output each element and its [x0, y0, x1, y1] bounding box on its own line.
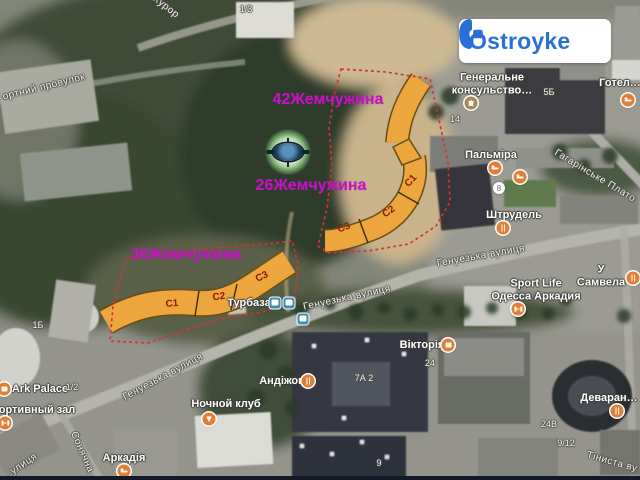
transit-icon[interactable] — [284, 298, 295, 309]
section-label: C3 — [254, 269, 270, 284]
poi-label[interactable]: У Самвела — [577, 264, 625, 289]
street-label: ортний провулок — [2, 71, 87, 102]
poi-label[interactable]: Турбаза — [227, 297, 270, 310]
building-number: 9/12 — [557, 438, 575, 448]
poi-label[interactable]: Ark Palace — [12, 383, 68, 396]
section-label: C3 — [336, 221, 352, 236]
building-number: 9 — [376, 458, 381, 468]
bar-icon[interactable] — [203, 413, 216, 426]
hotel-icon[interactable] — [514, 171, 527, 184]
building-number: 7А 2 — [355, 373, 374, 383]
building-number: 24 — [425, 358, 435, 368]
poi-label[interactable]: Ночной клуб — [191, 398, 260, 411]
transit-icon[interactable] — [270, 298, 281, 309]
transit-icon[interactable] — [298, 314, 309, 325]
poi-label[interactable]: Аркадія — [103, 452, 146, 465]
street-label: Генуезька вулиця — [121, 351, 205, 403]
building-number: 1Б — [33, 320, 44, 330]
complex-label: 36Жемчужина — [131, 246, 242, 264]
restaurant-icon[interactable] — [611, 405, 624, 418]
poi-label[interactable]: Генеральне консульство… — [452, 72, 532, 97]
street-label: Генуезька вулиця — [436, 243, 526, 269]
restaurant-icon[interactable] — [627, 272, 640, 285]
restaurant-icon[interactable] — [302, 375, 315, 388]
street-label: Гагарінське Плато — [552, 147, 637, 204]
building-number: 1/2 — [66, 382, 79, 392]
store-icon[interactable] — [442, 339, 455, 352]
venue-icon[interactable] — [0, 383, 11, 396]
poi-label[interactable]: Деваран… — [580, 392, 637, 405]
poi-label[interactable]: Штрудель — [486, 209, 542, 222]
building-number: 8 — [493, 182, 505, 194]
complex-label: 26Жемчужина — [256, 177, 367, 195]
street-label: Тіниста ву — [585, 449, 638, 474]
poi-label[interactable]: Sport Life Одесса Аркадия — [491, 278, 580, 303]
street-label: Сонячна — [68, 430, 96, 474]
section-label: C1 — [165, 298, 179, 310]
section-label: C2 — [381, 204, 398, 220]
street-label: Курор — [151, 0, 181, 21]
section-label: C1 — [403, 173, 420, 190]
fitness-icon[interactable] — [512, 303, 525, 316]
hotel-icon[interactable] — [622, 94, 635, 107]
street-label: Генуезька вулиця — [302, 283, 392, 312]
ostroyke-logo: Ostroyke — [459, 19, 611, 63]
poi-label[interactable]: Пальміра — [465, 149, 517, 162]
fitness-icon[interactable] — [0, 417, 12, 430]
poi-label[interactable]: ортивный зал — [0, 404, 75, 417]
museum-icon[interactable] — [465, 97, 478, 110]
building-number: 24В — [541, 419, 557, 429]
bottom-strip — [0, 476, 640, 480]
poi-label[interactable]: Вікторія — [400, 339, 445, 352]
map-canvas[interactable]: Куророртний провулокГагарінське ПлатоГен… — [0, 0, 640, 480]
hotel-icon[interactable] — [489, 162, 502, 175]
section-label: C2 — [212, 291, 226, 304]
street-label: улиця — [9, 451, 40, 477]
restaurant-icon[interactable] — [497, 222, 510, 235]
ostroyke-logo-icon — [459, 19, 485, 49]
building-number: 14 — [450, 114, 460, 124]
building-number: 5Б — [544, 87, 555, 97]
building-number: 1/3 — [240, 4, 253, 14]
complex-label: 42Жемчужина — [273, 91, 384, 109]
map-labels-layer: Куророртний провулокГагарінське ПлатоГен… — [0, 0, 640, 480]
poi-label[interactable]: Андіжон — [259, 375, 305, 388]
poi-label[interactable]: Готел… — [599, 77, 640, 90]
